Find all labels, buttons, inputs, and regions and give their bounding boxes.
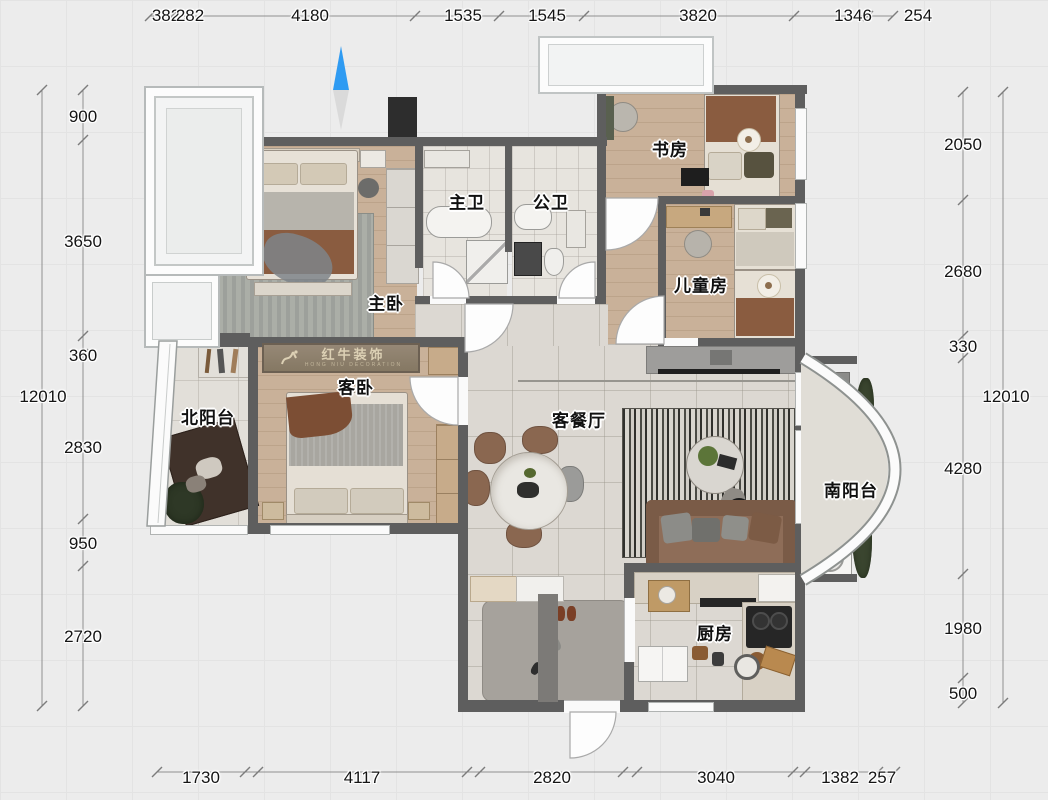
room-label-kids-room: 儿童房 bbox=[674, 272, 728, 297]
dim-top-254: 254 bbox=[904, 6, 932, 26]
kitchen-cabinet-white bbox=[758, 574, 796, 602]
kids-bed-1-sheet bbox=[736, 232, 794, 266]
door-opening bbox=[664, 338, 698, 346]
study-teddy bbox=[744, 152, 774, 178]
dim-bottom-2820: 2820 bbox=[533, 768, 571, 788]
wall bbox=[795, 356, 857, 364]
dim-bottom-3040: 3040 bbox=[697, 768, 735, 788]
tv-device bbox=[710, 350, 732, 365]
master-nightstand bbox=[360, 150, 386, 168]
sofa-back bbox=[646, 500, 796, 516]
kids-bed-1-pillow bbox=[738, 208, 766, 230]
kitchen-plate bbox=[658, 586, 676, 604]
dim-left-3650: 3650 bbox=[64, 232, 102, 252]
kids-bed-2-blanket bbox=[736, 298, 794, 336]
wall bbox=[624, 563, 804, 572]
storage-box bbox=[810, 372, 850, 404]
table-centerpiece bbox=[517, 482, 539, 498]
kettle bbox=[712, 652, 724, 666]
entry-door-opening bbox=[564, 700, 620, 713]
dim-top-3820: 3820 bbox=[679, 6, 717, 26]
dining-chair bbox=[474, 432, 506, 464]
dim-top-282: 282 bbox=[176, 6, 204, 26]
room-label-kitchen: 厨房 bbox=[697, 620, 733, 645]
dim-left-360: 360 bbox=[69, 346, 97, 366]
kitchen-window bbox=[648, 702, 714, 712]
dim-right-4280: 4280 bbox=[944, 459, 982, 479]
master-bed-pillow bbox=[300, 163, 347, 185]
kitchen-door-opening bbox=[624, 598, 635, 662]
study-monitor bbox=[681, 168, 709, 186]
dim-right-500: 500 bbox=[949, 684, 977, 704]
door-opening bbox=[430, 296, 466, 304]
room-label-study: 书房 bbox=[652, 136, 688, 161]
dim-bottom-4117: 4117 bbox=[344, 768, 381, 788]
master-wardrobe-dark bbox=[388, 97, 417, 139]
dim-top-1535: 1535 bbox=[444, 6, 482, 26]
study-shelf bbox=[606, 96, 614, 140]
curtain-rail bbox=[518, 380, 796, 382]
shower bbox=[466, 240, 508, 284]
balcony-window-sill bbox=[150, 525, 248, 535]
dim-top-1545: 1545 bbox=[528, 6, 566, 26]
study-window bbox=[795, 108, 807, 180]
entry-pillar bbox=[538, 594, 558, 702]
wall bbox=[415, 146, 423, 268]
door-opening bbox=[557, 296, 595, 304]
guest-nightstand bbox=[408, 502, 430, 520]
kids-flower-center bbox=[765, 282, 772, 289]
sofa-cushion bbox=[748, 512, 782, 545]
dim-bottom-1382: 1382 bbox=[821, 768, 859, 788]
dim-top-1346: 1346 bbox=[834, 6, 872, 26]
north-arrow-icon bbox=[333, 46, 349, 130]
brand-logo: 红牛装饰 HONG NIU DECORATION bbox=[262, 343, 420, 373]
room-label-north-balcony: 北阳台 bbox=[181, 404, 235, 429]
guest-nightstand bbox=[262, 502, 284, 520]
wall bbox=[658, 198, 666, 346]
wall bbox=[597, 146, 606, 304]
shoes bbox=[567, 606, 576, 621]
room-label-master-bedroom: 主卧 bbox=[368, 290, 404, 315]
bay-window-master-glass bbox=[166, 108, 242, 254]
room-label-living-dining: 客餐厅 bbox=[552, 407, 606, 432]
basket bbox=[692, 646, 708, 660]
logo-subtitle: HONG NIU DECORATION bbox=[305, 363, 402, 368]
dim-left-950: 950 bbox=[69, 534, 97, 554]
dim-left-total: 12010 bbox=[19, 387, 66, 407]
sofa-cushion bbox=[721, 515, 749, 542]
wall bbox=[597, 92, 606, 146]
wall bbox=[248, 340, 258, 531]
dim-bottom-257: 257 bbox=[868, 768, 896, 788]
dim-top-4180: 4180 bbox=[291, 6, 329, 26]
kids-desk-item bbox=[700, 208, 710, 216]
washing-machine-drum bbox=[816, 544, 844, 572]
floor-hallway bbox=[604, 198, 660, 346]
study-pillow bbox=[708, 152, 742, 180]
dim-right-total: 12010 bbox=[982, 387, 1029, 407]
study-flower-center bbox=[745, 136, 752, 143]
guest-bed-pillow bbox=[350, 488, 404, 514]
room-label-public-bath: 公卫 bbox=[533, 189, 569, 214]
logo-title: 红牛装饰 bbox=[321, 348, 385, 361]
dim-left-2830: 2830 bbox=[64, 438, 102, 458]
dim-right-2680: 2680 bbox=[944, 262, 982, 282]
dim-left-900: 900 bbox=[69, 107, 97, 127]
floor-plan-canvas: 红牛装饰 HONG NIU DECORATION bbox=[0, 0, 1048, 800]
balcony-door-opening bbox=[795, 430, 807, 524]
room-label-master-bath: 主卫 bbox=[449, 189, 485, 214]
cooktop-burner bbox=[770, 612, 788, 630]
kids-chair bbox=[684, 230, 712, 258]
tv-screen bbox=[658, 369, 780, 374]
dim-right-2050: 2050 bbox=[944, 135, 982, 155]
wall bbox=[795, 574, 857, 582]
dim-right-330: 330 bbox=[949, 337, 977, 357]
master-pouf bbox=[358, 178, 379, 198]
kids-desk bbox=[666, 206, 732, 228]
bull-icon bbox=[280, 349, 300, 367]
shoe-cabinet bbox=[470, 576, 518, 602]
vanity-sink bbox=[566, 210, 586, 248]
room-label-guest-bedroom: 客卧 bbox=[338, 374, 374, 399]
bay-window-lower-glass bbox=[152, 282, 212, 340]
washer bbox=[514, 242, 542, 276]
balcony-plants bbox=[856, 378, 874, 450]
master-bed-bench bbox=[254, 282, 352, 296]
sofa-arm bbox=[646, 500, 659, 566]
wall bbox=[658, 196, 798, 204]
bay-window-top-glass bbox=[548, 44, 704, 86]
dim-right-1980: 1980 bbox=[944, 619, 982, 639]
cooktop-burner bbox=[752, 612, 770, 630]
kids-window bbox=[795, 203, 807, 269]
toilet bbox=[544, 248, 564, 276]
door-opening bbox=[458, 377, 468, 425]
dim-left-2720: 2720 bbox=[64, 627, 102, 647]
balcony-window bbox=[795, 372, 807, 426]
guest-bed-pillow bbox=[294, 488, 348, 514]
fridge bbox=[638, 646, 688, 682]
dim-bottom-1730: 1730 bbox=[182, 768, 220, 788]
wall bbox=[505, 146, 512, 252]
sofa-cushion bbox=[692, 518, 720, 542]
kids-bed-1-pillow bbox=[766, 208, 792, 228]
guest-window bbox=[270, 525, 390, 535]
vanity-sink bbox=[424, 150, 470, 168]
sofa-cushion bbox=[660, 512, 694, 544]
table-plant bbox=[524, 468, 536, 478]
coffee-table-plant bbox=[698, 446, 718, 466]
kitchen-sink bbox=[734, 654, 760, 680]
room-label-south-balcony: 南阳台 bbox=[824, 477, 878, 502]
